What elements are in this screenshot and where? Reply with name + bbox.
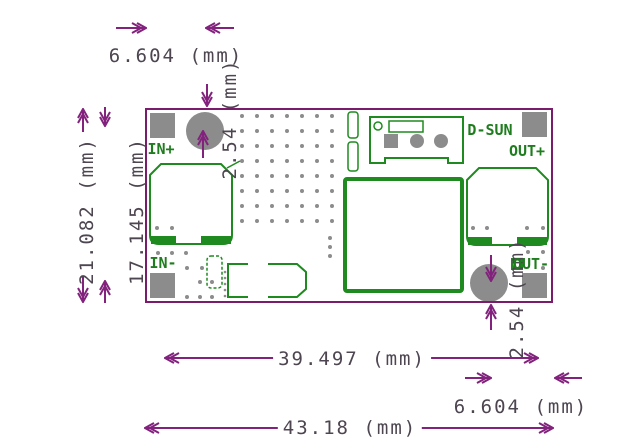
diode-outline [228, 264, 306, 297]
via-dot [315, 144, 319, 148]
via-dot [200, 266, 204, 270]
label-in-plus: IN+ [147, 140, 174, 158]
via-dot [471, 226, 475, 230]
resistor-outline-2 [348, 142, 358, 171]
via-dot [285, 114, 289, 118]
via-dot [285, 159, 289, 163]
via-dot [315, 204, 319, 208]
via-dot [240, 189, 244, 193]
via-dot [328, 236, 332, 240]
dimension-hole-span: 39.497 (mm) [273, 348, 431, 370]
via-dot [315, 174, 319, 178]
via-dot [300, 219, 304, 223]
via-dot [300, 189, 304, 193]
label-in-minus: IN- [149, 254, 176, 272]
via-dot [270, 189, 274, 193]
via-dot [198, 280, 202, 284]
via-dot [315, 129, 319, 133]
via-dot [330, 144, 334, 148]
via-dot [328, 254, 332, 258]
via-dot [541, 226, 545, 230]
via-dot [315, 219, 319, 223]
via-dot [330, 174, 334, 178]
via-dot [330, 159, 334, 163]
via-dot [285, 189, 289, 193]
via-dot [240, 204, 244, 208]
via-dot [285, 174, 289, 178]
label-out-minus: OUT- [513, 255, 549, 273]
label-brand: D-SUN [467, 121, 512, 139]
pad-in-minus [150, 273, 175, 298]
via-dot [315, 189, 319, 193]
via-dot [300, 114, 304, 118]
ic-hole-1 [410, 134, 424, 148]
via-dot [285, 204, 289, 208]
via-dot [300, 174, 304, 178]
via-dot [285, 129, 289, 133]
via-dot [255, 159, 259, 163]
via-dot [330, 219, 334, 223]
output-capacitor-outline [467, 168, 548, 245]
resistor-outline-1 [348, 112, 358, 138]
via-dot [270, 159, 274, 163]
via-dot [485, 226, 489, 230]
via-dot [224, 277, 227, 280]
via-dot [300, 144, 304, 148]
via-dot [525, 226, 529, 230]
via-dot [224, 295, 227, 298]
via-dot [255, 204, 259, 208]
via-dot [170, 226, 174, 230]
via-dot [210, 280, 214, 284]
via-dot [224, 283, 227, 286]
via-dot [255, 219, 259, 223]
dimension-bottom-hole-x: 6.604 (mm) [454, 396, 588, 418]
via-dot [255, 189, 259, 193]
via-dot [328, 245, 332, 249]
via-dot [255, 114, 259, 118]
ic-window [389, 121, 423, 132]
via-dot [255, 174, 259, 178]
via-dot [255, 129, 259, 133]
via-dot [270, 204, 274, 208]
dimension-board-height: 21.082 (mm) [76, 137, 98, 285]
via-dot [300, 159, 304, 163]
label-out-plus: OUT+ [509, 142, 545, 160]
dimension-pad-row-span: 17.145 (mm) [126, 137, 148, 285]
pin1-mark-icon [374, 122, 382, 130]
via-dot [541, 250, 545, 254]
via-dot [270, 144, 274, 148]
dimension-top-hole-y: 2.54 (mm) [219, 59, 241, 180]
via-dot [198, 295, 202, 299]
pcb-dimension-drawing: 6.604 (mm) 2.54 (mm) 21.082 (mm) 17.145 … [0, 0, 630, 446]
via-dot [210, 295, 214, 299]
via-dot [300, 204, 304, 208]
via-dot [155, 226, 159, 230]
via-dot [255, 144, 259, 148]
via-dot [224, 271, 227, 274]
via-dot [285, 144, 289, 148]
mounting-hole-bottom-right [470, 264, 508, 302]
ic-hole-2 [434, 134, 448, 148]
pad-in-plus [150, 113, 175, 138]
via-dot [185, 295, 189, 299]
pad-out-plus [522, 112, 547, 137]
via-dot [330, 129, 334, 133]
via-dot [330, 114, 334, 118]
via-dot [270, 114, 274, 118]
inductor-outline [345, 179, 462, 291]
via-dot [240, 219, 244, 223]
via-dot [224, 289, 227, 292]
dashed-component-outline [207, 256, 222, 288]
via-dot [300, 129, 304, 133]
via-dot [285, 219, 289, 223]
dimension-board-width: 43.18 (mm) [278, 417, 422, 439]
via-dot [270, 129, 274, 133]
via-dot [270, 174, 274, 178]
via-dot [315, 114, 319, 118]
via-dot [184, 251, 188, 255]
ic-pad [384, 134, 398, 148]
via-dot [270, 219, 274, 223]
via-dot [330, 189, 334, 193]
via-dot [315, 159, 319, 163]
via-dot [330, 204, 334, 208]
via-dot [185, 266, 189, 270]
